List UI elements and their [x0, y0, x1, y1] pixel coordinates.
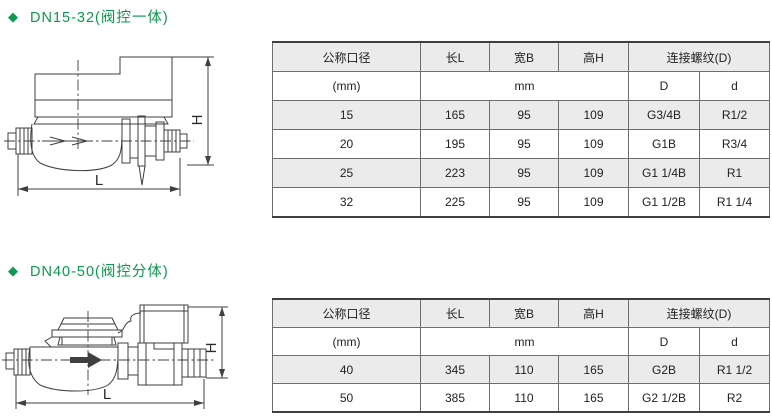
- data-cell: 109: [559, 159, 629, 188]
- data-cell: 50: [273, 384, 421, 413]
- data-cell: G1B: [629, 130, 700, 159]
- header-cell: 高H: [559, 299, 629, 328]
- data-cell: 110: [490, 384, 559, 413]
- dn40-50-spec-table: 公称口径 长L 宽B 高H 连接螺纹(D) (mm) mm D d 40 345…: [272, 298, 770, 413]
- data-cell: R1 1/2: [700, 356, 770, 384]
- data-cell: 195: [421, 130, 490, 159]
- data-cell: R1/2: [700, 101, 770, 130]
- data-cell: 95: [490, 130, 559, 159]
- section-title: DN40-50(阀控分体): [30, 260, 169, 281]
- data-cell: 20: [273, 130, 421, 159]
- data-cell: 345: [421, 356, 490, 384]
- data-cell: 25: [273, 159, 421, 188]
- data-cell: 165: [421, 101, 490, 130]
- unit-cell: D: [629, 72, 700, 101]
- data-cell: 110: [490, 356, 559, 384]
- data-cell: 95: [490, 101, 559, 130]
- unit-cell: d: [700, 72, 770, 101]
- header-cell: 长L: [421, 299, 490, 328]
- data-cell: G1 1/2B: [629, 188, 700, 218]
- data-cell: 385: [421, 384, 490, 413]
- dimension-label-h: H: [189, 115, 206, 126]
- unit-cell: (mm): [273, 72, 421, 101]
- data-cell: 95: [490, 159, 559, 188]
- dimension-label-l: L: [103, 386, 111, 403]
- header-cell: 连接螺纹(D): [629, 42, 770, 72]
- dimension-label-h: H: [203, 343, 220, 354]
- data-cell: G2B: [629, 356, 700, 384]
- table-unit-row: (mm) mm D d: [273, 72, 770, 101]
- unit-cell: (mm): [273, 328, 421, 356]
- unit-cell: d: [700, 328, 770, 356]
- header-cell: 公称口径: [273, 42, 421, 72]
- header-cell: 公称口径: [273, 299, 421, 328]
- table-row: 20 195 95 109 G1B R3/4: [273, 130, 770, 159]
- header-cell: 长L: [421, 42, 490, 72]
- header-cell: 高H: [559, 42, 629, 72]
- table-row: 40 345 110 165 G2B R1 1/2: [273, 356, 770, 384]
- spec-sheet: ◆ DN15-32(阀控一体) H: [0, 0, 772, 420]
- table-row: 32 225 95 109 G1 1/2B R1 1/4: [273, 188, 770, 218]
- table-unit-row: (mm) mm D d: [273, 328, 770, 356]
- header-cell: 连接螺纹(D): [629, 299, 770, 328]
- dimension-label-l: L: [95, 172, 103, 189]
- data-cell: R2: [700, 384, 770, 413]
- data-cell: G1 1/4B: [629, 159, 700, 188]
- header-cell: 宽B: [490, 42, 559, 72]
- dn15-32-spec-table: 公称口径 长L 宽B 高H 连接螺纹(D) (mm) mm D d 15 165…: [272, 41, 770, 218]
- data-cell: R1: [700, 159, 770, 188]
- data-cell: 109: [559, 188, 629, 218]
- data-cell: 109: [559, 101, 629, 130]
- table-row: 25 223 95 109 G1 1/4B R1: [273, 159, 770, 188]
- table-row: 50 385 110 165 G2 1/2B R2: [273, 384, 770, 413]
- diamond-bullet-icon: ◆: [8, 264, 19, 277]
- unit-cell: mm: [421, 328, 629, 356]
- data-cell: 109: [559, 130, 629, 159]
- data-cell: 15: [273, 101, 421, 130]
- data-cell: 165: [559, 356, 629, 384]
- data-cell: 32: [273, 188, 421, 218]
- data-cell: 223: [421, 159, 490, 188]
- section-heading-dn15-32: ◆ DN15-32(阀控一体): [8, 6, 169, 27]
- unit-cell: D: [629, 328, 700, 356]
- data-cell: 95: [490, 188, 559, 218]
- diamond-bullet-icon: ◆: [8, 10, 19, 23]
- data-cell: R3/4: [700, 130, 770, 159]
- data-cell: 165: [559, 384, 629, 413]
- header-cell: 宽B: [490, 299, 559, 328]
- table-header-row: 公称口径 长L 宽B 高H 连接螺纹(D): [273, 42, 770, 72]
- data-cell: G3/4B: [629, 101, 700, 130]
- section-title: DN15-32(阀控一体): [30, 6, 169, 27]
- data-cell: G2 1/2B: [629, 384, 700, 413]
- data-cell: 40: [273, 356, 421, 384]
- data-cell: R1 1/4: [700, 188, 770, 218]
- data-cell: 225: [421, 188, 490, 218]
- unit-cell: mm: [421, 72, 629, 101]
- table-row: 15 165 95 109 G3/4B R1/2: [273, 101, 770, 130]
- table-header-row: 公称口径 长L 宽B 高H 连接螺纹(D): [273, 299, 770, 328]
- dn40-50-meter-drawing: H L: [0, 293, 240, 418]
- section-heading-dn40-50: ◆ DN40-50(阀控分体): [8, 260, 169, 281]
- dn15-32-meter-drawing: H L: [2, 38, 234, 218]
